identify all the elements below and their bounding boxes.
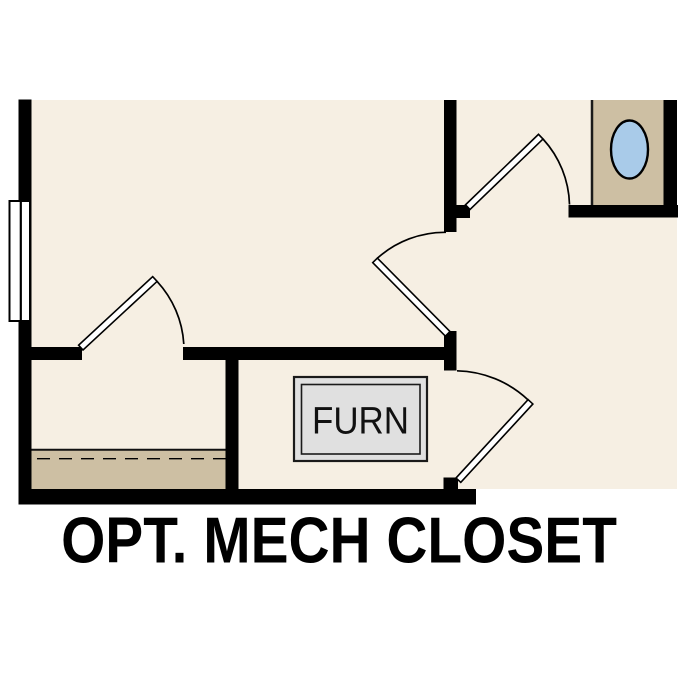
svg-text:OPT. MECH CLOSET: OPT. MECH CLOSET xyxy=(61,504,617,576)
svg-text:FURN: FURN xyxy=(312,399,409,442)
